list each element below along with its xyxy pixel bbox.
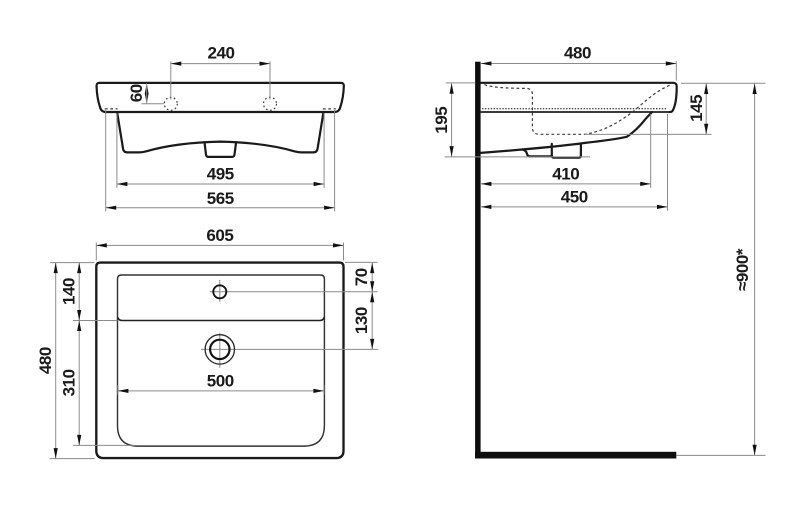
svg-text:410: 410 (552, 164, 579, 183)
svg-text:240: 240 (207, 44, 234, 63)
svg-text:60: 60 (127, 84, 146, 102)
svg-text:565: 565 (207, 189, 234, 208)
svg-text:145: 145 (687, 95, 706, 122)
svg-text:70: 70 (352, 268, 371, 286)
svg-text:≈900*: ≈900* (733, 248, 752, 291)
svg-text:195: 195 (432, 107, 451, 134)
svg-text:605: 605 (206, 226, 233, 245)
svg-text:495: 495 (207, 164, 234, 183)
svg-text:450: 450 (561, 187, 588, 206)
svg-text:130: 130 (352, 307, 371, 334)
svg-text:480: 480 (564, 44, 591, 63)
svg-text:140: 140 (60, 278, 79, 305)
svg-text:310: 310 (60, 369, 79, 396)
svg-text:500: 500 (207, 371, 234, 390)
svg-text:480: 480 (36, 347, 55, 374)
